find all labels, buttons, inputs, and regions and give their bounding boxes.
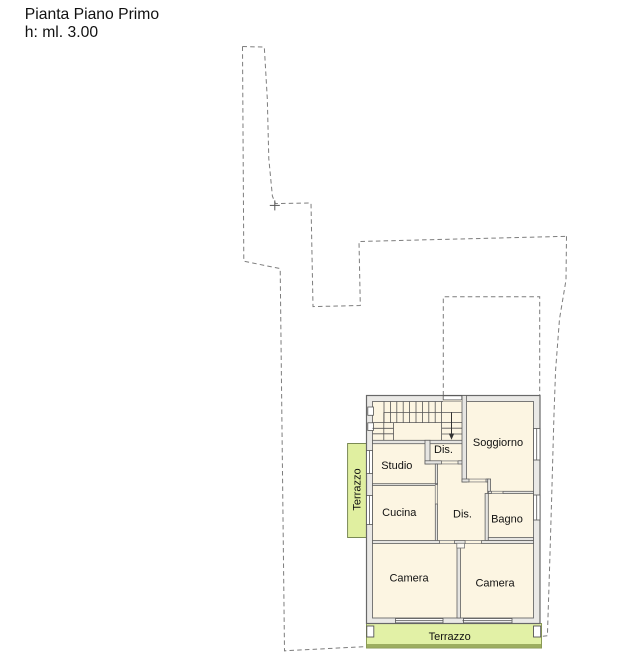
svg-text:Cucina: Cucina [382,507,417,519]
svg-text:Camera: Camera [475,578,515,590]
svg-text:Studio: Studio [381,460,412,472]
svg-text:Camera: Camera [389,573,429,585]
svg-text:Pianta Piano Primo: Pianta Piano Primo [25,6,160,23]
svg-text:h: ml. 3.00: h: ml. 3.00 [25,24,99,41]
svg-text:Dis.: Dis. [434,444,453,456]
svg-text:Soggiorno: Soggiorno [473,437,523,449]
svg-text:Terrazzo: Terrazzo [351,468,363,510]
svg-text:Bagno: Bagno [491,514,523,526]
svg-text:Dis.: Dis. [453,509,472,521]
svg-text:Terrazzo: Terrazzo [429,631,471,643]
